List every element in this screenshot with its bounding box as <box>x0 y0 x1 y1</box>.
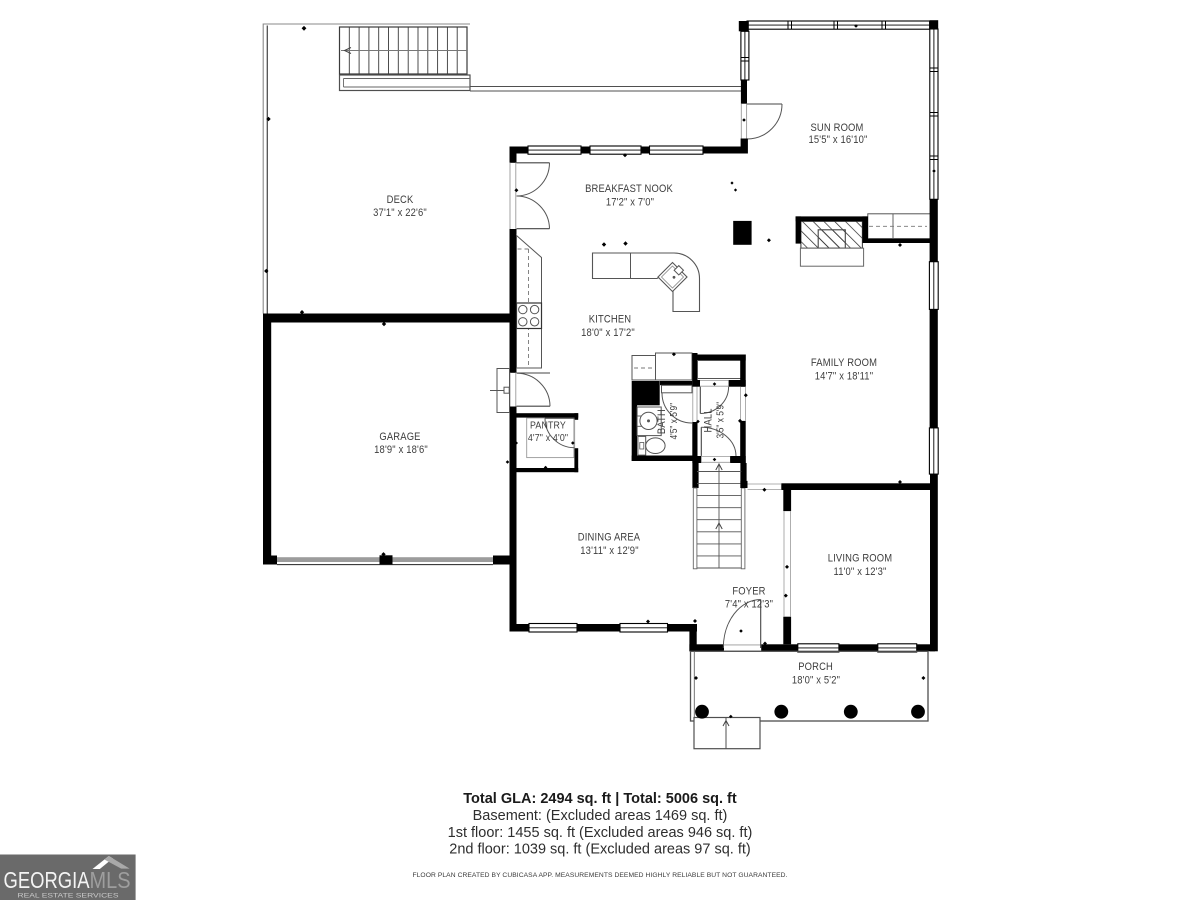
svg-text:15'5" x 16'10": 15'5" x 16'10" <box>808 135 867 147</box>
svg-text:GEORGIA: GEORGIA <box>4 867 91 893</box>
svg-text:BREAKFAST NOOK: BREAKFAST NOOK <box>585 183 673 195</box>
svg-text:DINING AREA: DINING AREA <box>578 532 640 544</box>
svg-text:11'0" x 12'3": 11'0" x 12'3" <box>833 566 886 578</box>
svg-text:PANTRY: PANTRY <box>530 420 566 432</box>
svg-text:7'4" x 12'3": 7'4" x 12'3" <box>725 599 773 611</box>
svg-text:LIVING ROOM: LIVING ROOM <box>828 553 892 565</box>
svg-text:FOYER: FOYER <box>732 586 765 598</box>
svg-text:BATH: BATH <box>656 409 668 434</box>
svg-text:37'1" x 22'6": 37'1" x 22'6" <box>373 207 427 219</box>
svg-text:1st floor: 1455 sq. ft (Exclud: 1st floor: 1455 sq. ft (Excluded areas 9… <box>448 825 753 841</box>
svg-text:13'11" x 12'9": 13'11" x 12'9" <box>580 545 639 557</box>
svg-text:3'5" x 5'9": 3'5" x 5'9" <box>715 402 726 439</box>
svg-text:17'2" x 7'0": 17'2" x 7'0" <box>606 197 654 209</box>
svg-text:Basement: (Excluded areas 1469: Basement: (Excluded areas 1469 sq. ft) <box>473 808 728 824</box>
svg-text:18'9" x 18'6": 18'9" x 18'6" <box>374 444 428 456</box>
svg-text:4'5" x 5'9": 4'5" x 5'9" <box>668 403 679 440</box>
svg-text:2nd floor: 1039 sq. ft (Exclud: 2nd floor: 1039 sq. ft (Excluded areas 9… <box>449 842 750 858</box>
svg-text:MLS: MLS <box>90 867 131 893</box>
svg-text:18'0" x 5'2": 18'0" x 5'2" <box>792 675 840 687</box>
svg-text:FAMILY ROOM: FAMILY ROOM <box>811 357 877 369</box>
svg-text:Total GLA: 2494 sq. ft | Total: Total GLA: 2494 sq. ft | Total: 5006 sq.… <box>463 791 737 807</box>
svg-text:DECK: DECK <box>387 194 414 206</box>
svg-text:GARAGE: GARAGE <box>379 431 420 443</box>
svg-text:18'0" x 17'2": 18'0" x 17'2" <box>581 327 635 339</box>
svg-text:14'7" x 18'11": 14'7" x 18'11" <box>815 371 874 383</box>
svg-text:KITCHEN: KITCHEN <box>589 314 631 326</box>
svg-text:REAL ESTATE SERVICES: REAL ESTATE SERVICES <box>18 894 119 900</box>
svg-text:FLOOR PLAN CREATED BY CUBICASA: FLOOR PLAN CREATED BY CUBICASA APP. MEAS… <box>412 872 787 879</box>
svg-text:HALL: HALL <box>703 408 715 432</box>
svg-text:SUN ROOM: SUN ROOM <box>810 122 863 134</box>
svg-text:4'7" x 4'0": 4'7" x 4'0" <box>528 432 569 444</box>
svg-text:PORCH: PORCH <box>798 661 833 673</box>
